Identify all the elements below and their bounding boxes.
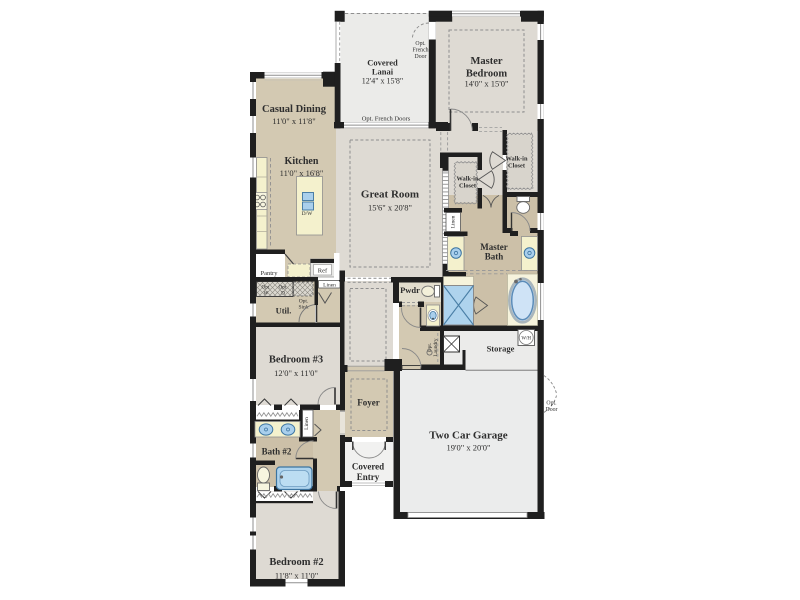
svg-text:Casual Dining: Casual Dining (262, 104, 327, 115)
svg-text:Door: Door (415, 54, 427, 60)
svg-text:Linen: Linen (304, 417, 310, 430)
svg-text:Util.: Util. (276, 306, 292, 316)
svg-text:Master: Master (470, 56, 502, 67)
svg-text:11'8" x 11'0": 11'8" x 11'0" (275, 571, 318, 581)
svg-text:Great Room: Great Room (361, 189, 419, 201)
svg-text:Lanai: Lanai (372, 67, 394, 77)
svg-text:15'6" x 20'8": 15'6" x 20'8" (368, 203, 412, 213)
svg-text:Master: Master (480, 242, 507, 252)
svg-text:12'0" x 11'0": 12'0" x 11'0" (274, 368, 318, 378)
svg-text:French: French (412, 48, 428, 54)
svg-text:12'4" x 15'8": 12'4" x 15'8" (362, 77, 403, 86)
svg-text:Ref: Ref (318, 268, 328, 275)
svg-text:Opt. French Doors: Opt. French Doors (362, 116, 411, 123)
svg-text:Bedroom #3: Bedroom #3 (269, 355, 323, 366)
svg-text:Closet: Closet (459, 182, 477, 189)
svg-text:D/W: D/W (302, 211, 314, 217)
svg-text:D: D (281, 291, 285, 297)
svg-text:W/H: W/H (521, 337, 531, 342)
svg-text:Bath #2: Bath #2 (262, 447, 292, 457)
svg-text:Linen: Linen (323, 283, 336, 289)
svg-text:Pwdr: Pwdr (400, 285, 420, 295)
svg-text:Kitchen: Kitchen (285, 156, 319, 167)
svg-text:Closet: Closet (508, 162, 526, 169)
svg-text:11'0" x 16'8": 11'0" x 16'8" (280, 168, 324, 178)
svg-text:Opt.: Opt. (546, 401, 557, 407)
svg-text:11'0" x 11'8": 11'0" x 11'8" (272, 116, 315, 126)
svg-text:Linen: Linen (451, 215, 457, 228)
svg-text:19'0" x 20'0": 19'0" x 20'0" (446, 443, 490, 453)
svg-text:Pantry: Pantry (261, 270, 279, 277)
svg-text:Covered: Covered (352, 462, 384, 472)
svg-text:Entry: Entry (357, 472, 380, 482)
svg-text:Opt.: Opt. (415, 41, 426, 47)
svg-text:Door: Door (546, 407, 558, 413)
svg-text:Two Car Garage: Two Car Garage (429, 430, 508, 442)
svg-text:Storage: Storage (487, 344, 515, 354)
svg-text:Laundry: Laundry (433, 338, 439, 357)
svg-text:W: W (264, 291, 269, 297)
svg-text:14'0" x 15'0": 14'0" x 15'0" (464, 79, 508, 89)
svg-text:Bath: Bath (485, 252, 504, 262)
svg-text:Bedroom #2: Bedroom #2 (269, 557, 323, 568)
svg-text:Foyer: Foyer (357, 398, 380, 408)
